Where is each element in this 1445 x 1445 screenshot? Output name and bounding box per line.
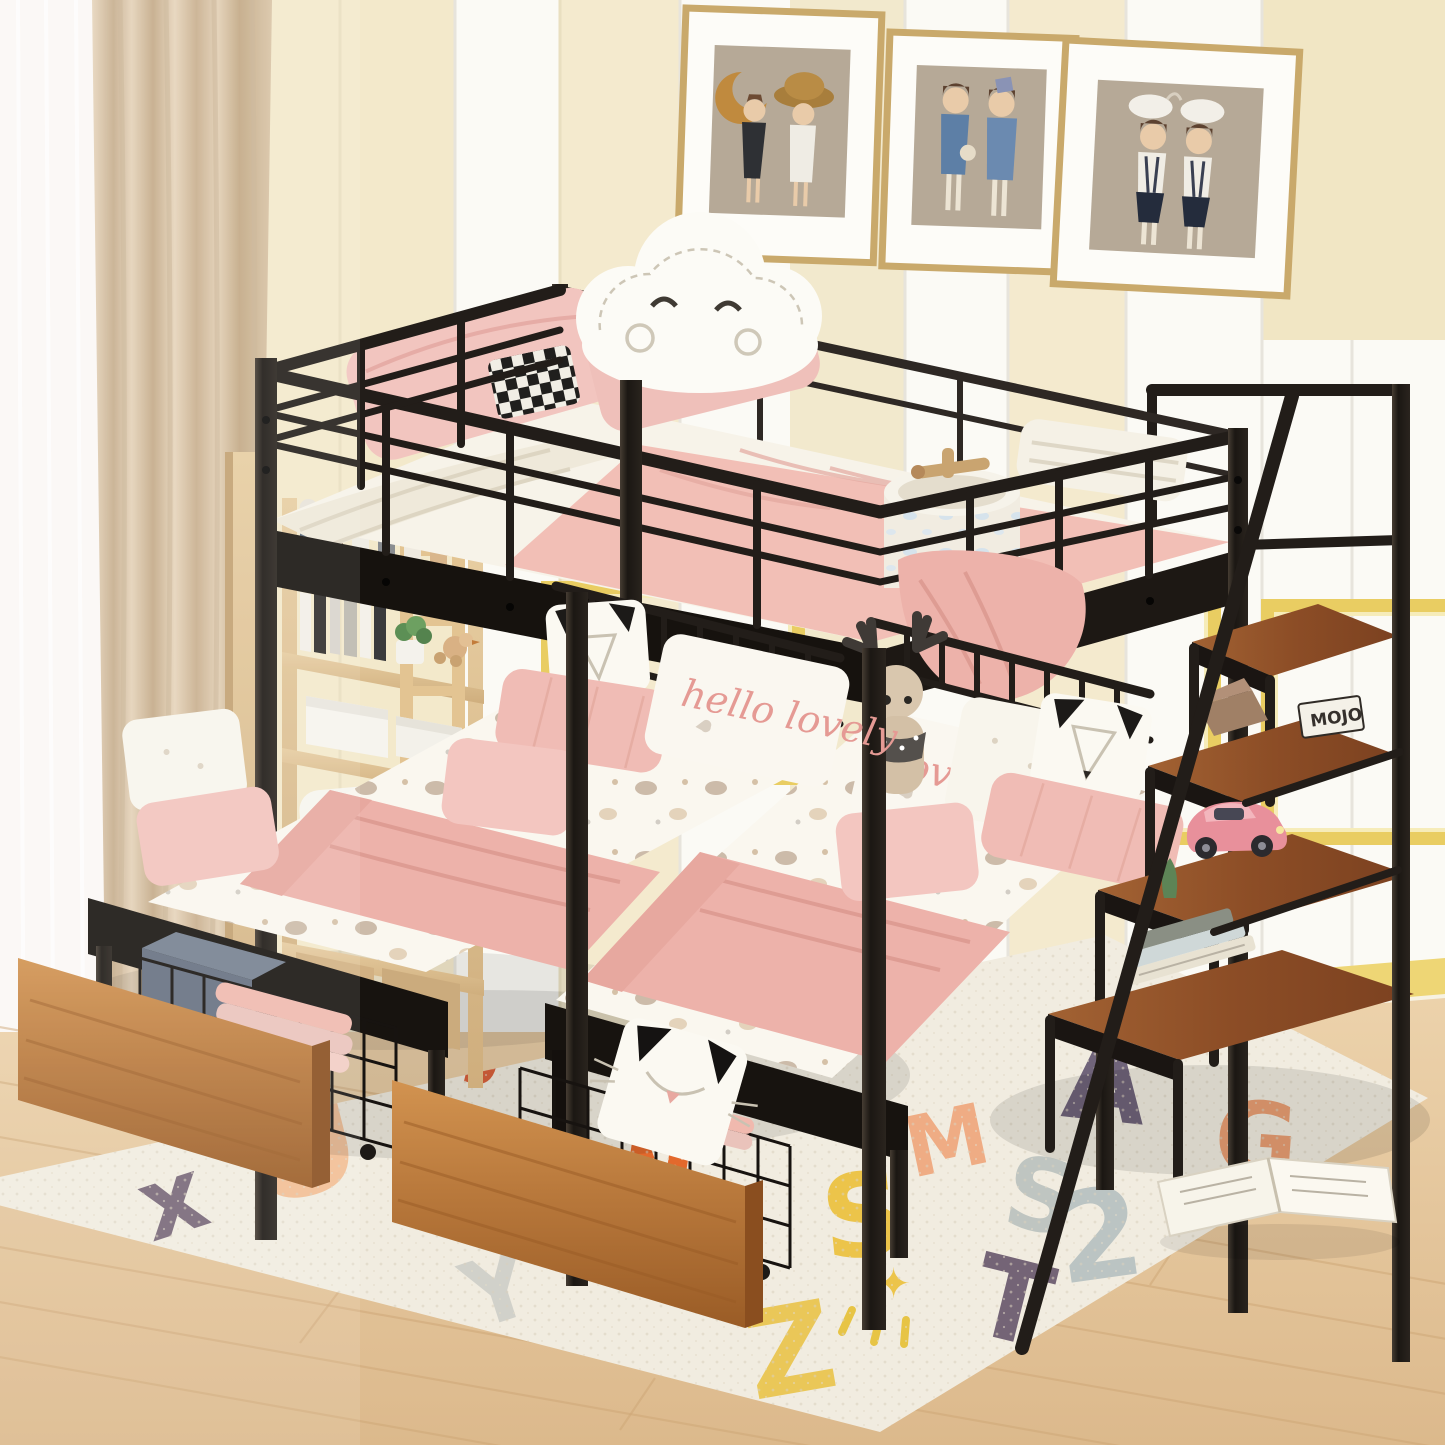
loft-mid-stanchion [620, 380, 642, 605]
scene-canvas: U w x W j Q S Z T M S 2 A G Y ✦ 3 [0, 0, 1445, 1445]
room-scene: U w x W j Q S Z T M S 2 A G Y ✦ 3 [0, 0, 1445, 1445]
window-light-overlay [0, 0, 360, 1445]
open-book [1158, 1158, 1400, 1260]
pink-pillow-front [834, 801, 980, 903]
framed-art-2 [882, 32, 1076, 272]
pink-pillow-mid [440, 736, 580, 837]
stair-book: MOJO [1298, 696, 1364, 738]
wall-art-set [677, 8, 1299, 296]
framed-art-3 [1053, 40, 1299, 296]
right-twin-leg [890, 1150, 908, 1258]
caster-wheel-icon [360, 1144, 376, 1160]
headlight-icon [1276, 826, 1284, 834]
